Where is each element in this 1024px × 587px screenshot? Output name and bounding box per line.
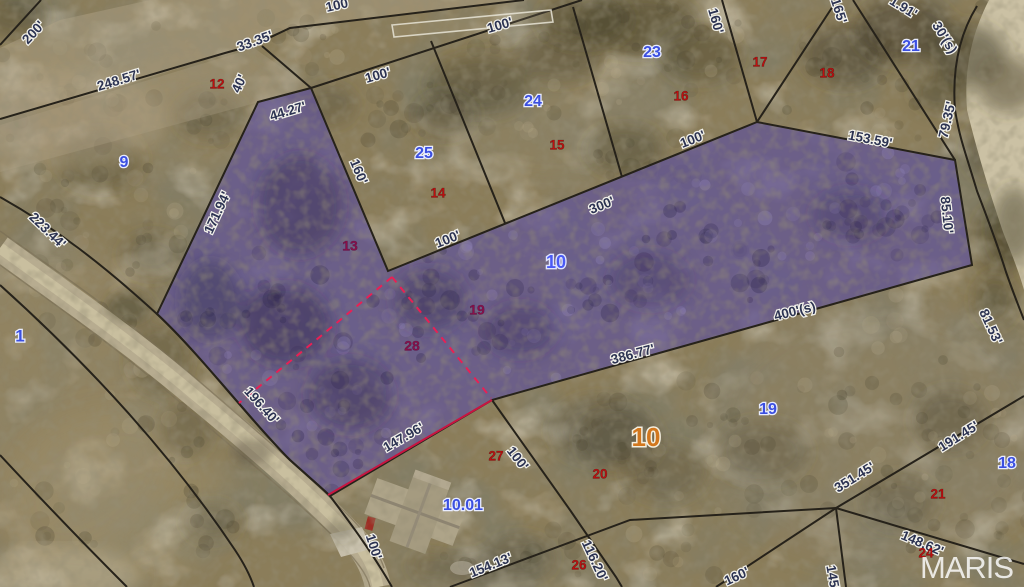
svg-text:20: 20 bbox=[592, 467, 607, 482]
svg-text:18: 18 bbox=[998, 455, 1016, 472]
svg-text:12: 12 bbox=[209, 77, 224, 92]
svg-text:10: 10 bbox=[632, 422, 661, 452]
svg-text:26: 26 bbox=[571, 558, 587, 573]
svg-text:1: 1 bbox=[15, 326, 24, 345]
svg-text:9: 9 bbox=[120, 154, 129, 171]
svg-text:10.01: 10.01 bbox=[443, 497, 483, 514]
svg-text:21: 21 bbox=[902, 38, 920, 55]
svg-text:21: 21 bbox=[930, 487, 946, 502]
svg-text:MARIS: MARIS bbox=[920, 550, 1014, 585]
svg-text:18: 18 bbox=[819, 66, 835, 81]
svg-text:19: 19 bbox=[469, 302, 485, 318]
svg-text:14: 14 bbox=[430, 186, 446, 201]
svg-text:13: 13 bbox=[342, 238, 358, 254]
svg-text:19: 19 bbox=[759, 401, 777, 418]
svg-text:23: 23 bbox=[643, 44, 661, 61]
svg-text:10: 10 bbox=[546, 252, 566, 272]
svg-text:17: 17 bbox=[752, 55, 767, 70]
svg-text:16: 16 bbox=[673, 89, 689, 104]
svg-text:25: 25 bbox=[415, 145, 433, 162]
svg-text:28: 28 bbox=[404, 338, 420, 354]
svg-text:27: 27 bbox=[488, 449, 503, 464]
svg-text:24: 24 bbox=[524, 93, 542, 110]
svg-text:15: 15 bbox=[549, 138, 565, 153]
